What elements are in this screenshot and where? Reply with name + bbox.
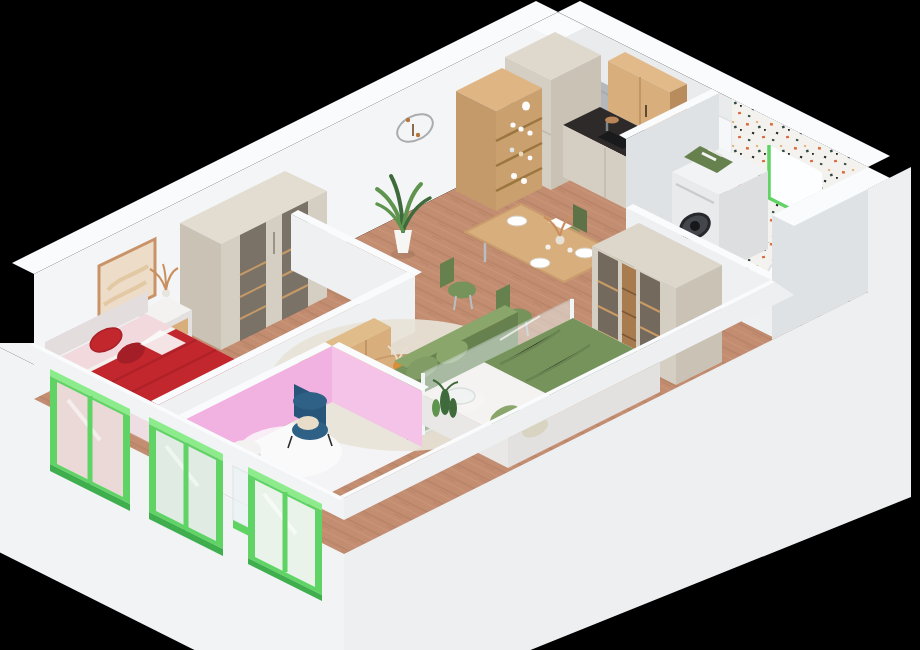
hanger-hook [406, 118, 410, 122]
floorplan-render [0, 0, 920, 650]
shelf-unit-side [456, 91, 496, 211]
hanger-hook2 [416, 133, 420, 137]
cutting-board [605, 117, 619, 124]
washer-drum [690, 221, 700, 231]
